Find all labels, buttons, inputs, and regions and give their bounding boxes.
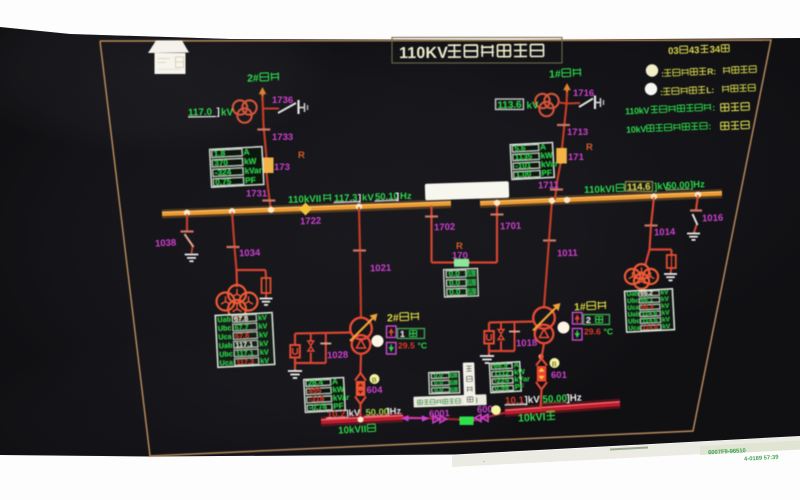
svg-text:1722: 1722 bbox=[300, 216, 322, 228]
svg-text:]kV: ]kV bbox=[524, 394, 540, 406]
svg-text:604: 604 bbox=[367, 385, 384, 396]
svg-text:A: A bbox=[468, 287, 474, 296]
svg-text:]: ] bbox=[396, 191, 399, 202]
svg-text:113.6: 113.6 bbox=[497, 100, 522, 112]
svg-text:1038: 1038 bbox=[155, 237, 177, 249]
svg-text:117.3: 117.3 bbox=[236, 357, 254, 367]
svg-text:kV: kV bbox=[662, 323, 671, 330]
svg-text:A: A bbox=[451, 386, 456, 393]
svg-text:114.6: 114.6 bbox=[642, 324, 658, 332]
svg-text:0.75: 0.75 bbox=[215, 177, 232, 187]
svg-text:]Hz: ]Hz bbox=[690, 179, 705, 191]
svg-text:370: 370 bbox=[214, 158, 229, 168]
svg-text:1.8: 1.8 bbox=[214, 149, 226, 159]
svg-text:1702: 1702 bbox=[434, 222, 456, 234]
svg-text:1.00: 1.00 bbox=[515, 169, 532, 179]
svg-text:]Hz: ]Hz bbox=[566, 393, 582, 405]
svg-text:Uca:: Uca: bbox=[219, 358, 235, 368]
svg-text:171: 171 bbox=[568, 152, 585, 163]
svg-text:kVar: kVar bbox=[244, 166, 263, 176]
svg-text:600: 600 bbox=[477, 404, 493, 416]
svg-text:1731: 1731 bbox=[246, 189, 268, 200]
svg-text:1018: 1018 bbox=[516, 338, 538, 350]
svg-text:R:: R: bbox=[707, 66, 717, 76]
svg-text:]: ] bbox=[358, 193, 361, 204]
svg-text:B: B bbox=[372, 377, 377, 384]
svg-text:1701: 1701 bbox=[500, 221, 522, 233]
svg-text:°C: °C bbox=[604, 327, 614, 337]
svg-text:1028: 1028 bbox=[327, 350, 349, 362]
svg-text:R: R bbox=[298, 150, 305, 161]
svg-text:1713: 1713 bbox=[567, 127, 588, 138]
svg-text:114.6: 114.6 bbox=[627, 182, 651, 194]
svg-text:6001: 6001 bbox=[429, 408, 450, 419]
svg-text:1: 1 bbox=[400, 329, 405, 339]
svg-text:601: 601 bbox=[551, 370, 568, 381]
svg-text:°C: °C bbox=[418, 341, 428, 351]
svg-text:2: 2 bbox=[586, 315, 591, 325]
svg-text:-324: -324 bbox=[215, 167, 232, 177]
svg-text:A: A bbox=[450, 379, 455, 386]
svg-text:110KV: 110KV bbox=[399, 45, 448, 62]
svg-text:1016: 1016 bbox=[702, 213, 724, 225]
svg-text:kV: kV bbox=[526, 100, 539, 111]
svg-text:1014: 1014 bbox=[654, 227, 676, 239]
svg-text:kW: kW bbox=[244, 157, 257, 167]
svg-text:-0.74: -0.74 bbox=[309, 402, 328, 412]
svg-text:10kVI: 10kVI bbox=[518, 411, 546, 424]
svg-text:1716: 1716 bbox=[573, 88, 594, 99]
svg-text:10kV: 10kV bbox=[626, 124, 647, 135]
svg-text:0.0: 0.0 bbox=[449, 269, 461, 278]
svg-text:1736: 1736 bbox=[272, 95, 293, 106]
svg-text:34: 34 bbox=[709, 44, 721, 55]
svg-text:R: R bbox=[586, 142, 593, 153]
svg-text:L:: L: bbox=[706, 85, 715, 95]
svg-text:43: 43 bbox=[689, 45, 700, 56]
svg-text:]: ] bbox=[217, 107, 220, 118]
svg-text:1034: 1034 bbox=[239, 248, 261, 260]
svg-text:1#: 1# bbox=[549, 68, 561, 80]
svg-text:Uca: Uca bbox=[628, 325, 641, 333]
svg-text:Hz: Hz bbox=[400, 191, 412, 202]
svg-text:0.0: 0.0 bbox=[434, 386, 444, 393]
svg-text:PF: PF bbox=[514, 382, 524, 392]
svg-text:2#: 2# bbox=[387, 312, 399, 324]
svg-text:A: A bbox=[450, 372, 455, 379]
svg-text:1011: 1011 bbox=[557, 248, 579, 260]
svg-text:110kVI: 110kVI bbox=[584, 184, 615, 196]
svg-text:2#: 2# bbox=[247, 72, 259, 84]
svg-text:1021: 1021 bbox=[370, 263, 392, 275]
svg-text:0.0: 0.0 bbox=[434, 379, 444, 386]
svg-text:03: 03 bbox=[668, 46, 679, 57]
svg-text:PF: PF bbox=[541, 168, 552, 178]
svg-text:B: B bbox=[552, 361, 557, 368]
svg-text:PF: PF bbox=[245, 176, 256, 186]
svg-text:0.0: 0.0 bbox=[449, 287, 461, 296]
svg-text:kV: kV bbox=[362, 193, 374, 204]
svg-text:kV: kV bbox=[221, 108, 233, 119]
svg-text:10kVII: 10kVII bbox=[338, 424, 367, 436]
svg-text:A: A bbox=[243, 148, 249, 157]
svg-text:kV: kV bbox=[260, 356, 269, 365]
svg-text:A: A bbox=[468, 278, 474, 287]
svg-text:29.6: 29.6 bbox=[584, 327, 601, 337]
svg-text:110kV: 110kV bbox=[625, 105, 650, 116]
svg-text:0.0: 0.0 bbox=[449, 278, 461, 287]
svg-text:29.5: 29.5 bbox=[398, 341, 415, 351]
svg-text:173: 173 bbox=[274, 162, 290, 173]
svg-text:0.98: 0.98 bbox=[494, 383, 509, 393]
svg-text:1711: 1711 bbox=[538, 180, 560, 192]
svg-text:1#: 1# bbox=[574, 301, 586, 313]
svg-text:A: A bbox=[467, 269, 473, 278]
svg-text:1733: 1733 bbox=[272, 132, 293, 143]
